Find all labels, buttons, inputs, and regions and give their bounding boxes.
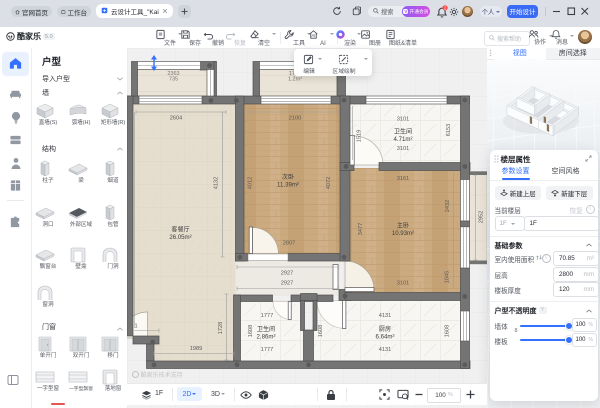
svg-text:1045: 1045 — [445, 271, 451, 283]
svg-text:4072: 4072 — [326, 177, 332, 189]
svg-text:1: 1 — [134, 324, 137, 330]
svg-text:2952: 2952 — [479, 211, 485, 223]
svg-text:卫生间: 卫生间 — [394, 128, 412, 136]
svg-text:11.39m²: 11.39m² — [277, 182, 299, 189]
svg-text:次卧: 次卧 — [282, 173, 294, 181]
svg-text:2432: 2432 — [445, 200, 451, 212]
svg-text:4132: 4132 — [214, 177, 220, 189]
svg-text:客餐厅: 客餐厅 — [171, 226, 189, 234]
svg-text:2927: 2927 — [281, 281, 293, 287]
svg-text:3101: 3101 — [397, 117, 409, 123]
svg-text:卫生间: 卫生间 — [257, 325, 275, 333]
svg-text:1777: 1777 — [261, 347, 273, 353]
svg-text:3101: 3101 — [397, 281, 409, 287]
svg-text:10.93m²: 10.93m² — [392, 230, 414, 237]
svg-text:4012: 4012 — [248, 177, 254, 189]
svg-text:1.2m²: 1.2m² — [288, 77, 302, 83]
svg-text:1608: 1608 — [445, 325, 451, 337]
svg-text:1728: 1728 — [218, 322, 224, 334]
svg-text:2100: 2100 — [289, 116, 301, 122]
svg-text:2604: 2604 — [170, 116, 182, 122]
svg-text:2927: 2927 — [281, 271, 293, 277]
svg-text:1608: 1608 — [318, 325, 324, 337]
svg-text:1777: 1777 — [261, 313, 273, 319]
svg-text:4.71m²: 4.71m² — [394, 136, 413, 143]
svg-text:3161: 3161 — [397, 176, 409, 182]
svg-text:735: 735 — [169, 77, 178, 83]
svg-text:AI: AI — [312, 33, 316, 38]
svg-text:2807: 2807 — [283, 241, 295, 247]
svg-text:1519: 1519 — [357, 130, 363, 142]
svg-text:3101: 3101 — [397, 146, 409, 152]
svg-text:主卧: 主卧 — [397, 222, 409, 230]
svg-text:2.86m²: 2.86m² — [257, 334, 276, 341]
svg-text:6153: 6153 — [446, 124, 452, 136]
svg-text:4131: 4131 — [379, 313, 391, 319]
svg-text:1608: 1608 — [248, 325, 254, 337]
svg-text:26.05m²: 26.05m² — [169, 234, 191, 241]
svg-text:6.64m²: 6.64m² — [376, 334, 395, 341]
svg-text:厨房: 厨房 — [379, 325, 391, 333]
svg-text:4131: 4131 — [379, 347, 391, 353]
svg-text:1989: 1989 — [190, 346, 202, 352]
svg-text:3477: 3477 — [358, 223, 364, 235]
